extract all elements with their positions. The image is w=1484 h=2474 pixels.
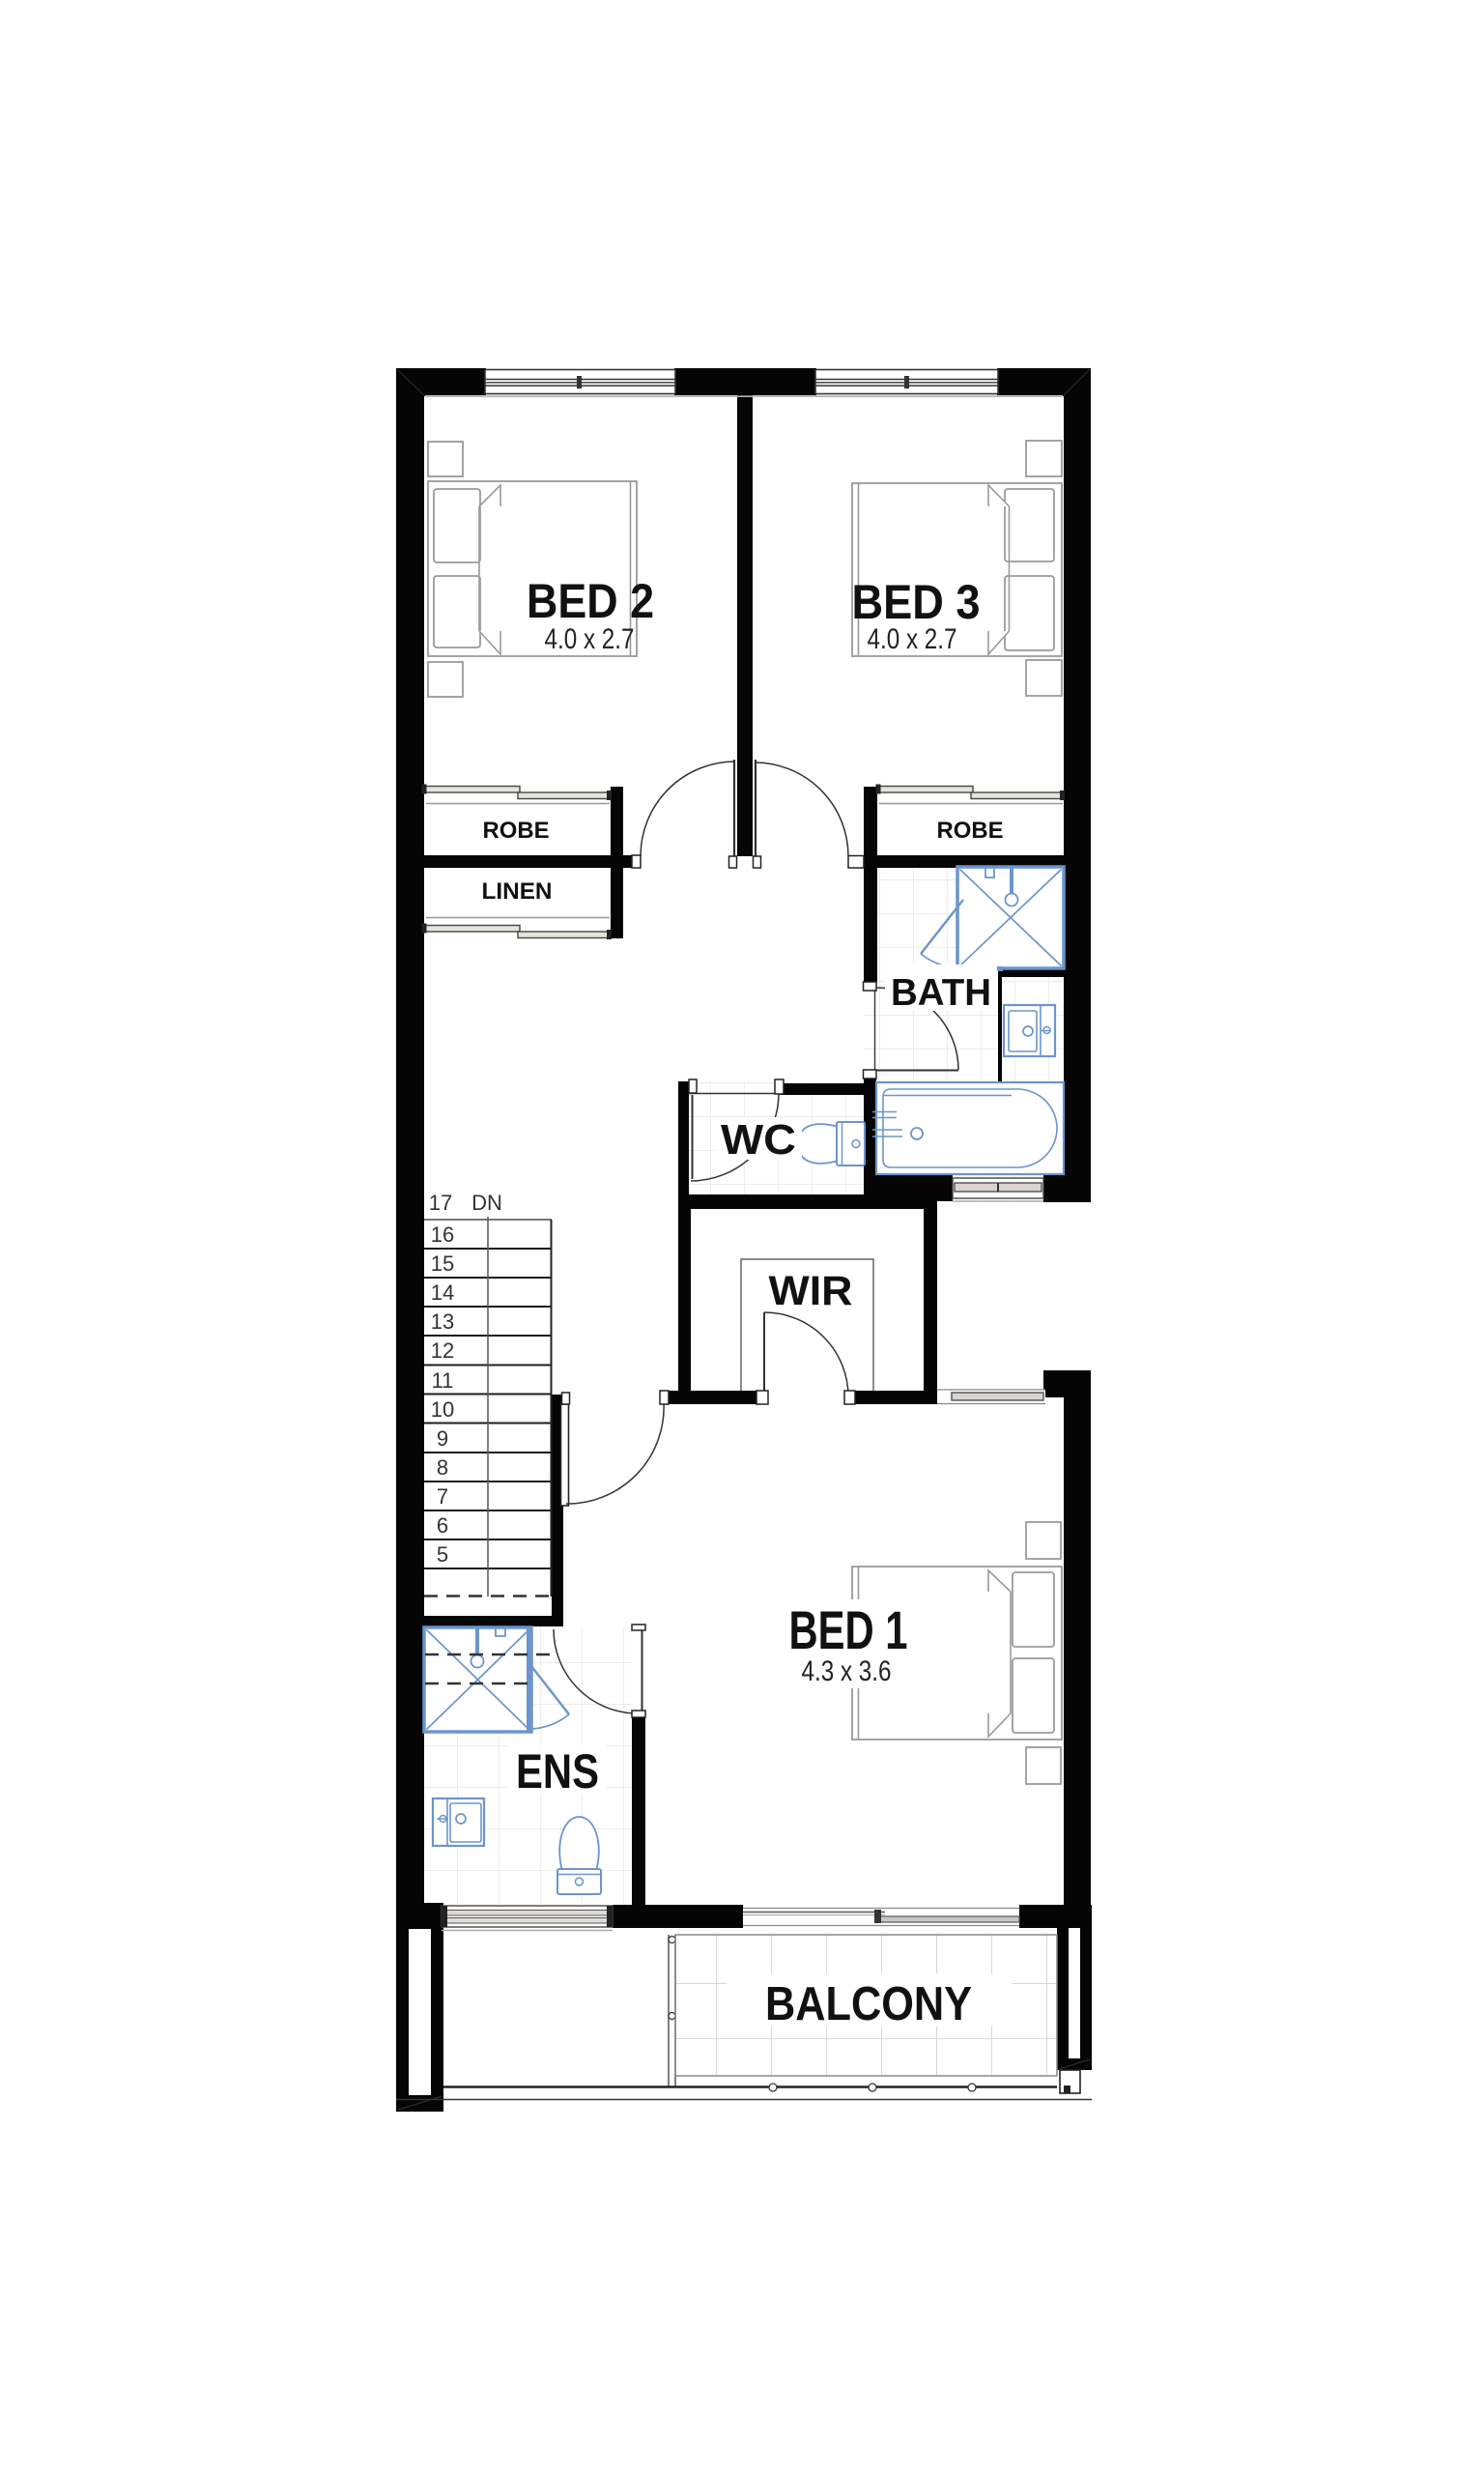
svg-text:BED 3: BED 3: [852, 575, 981, 629]
svg-text:5: 5: [437, 1542, 448, 1567]
svg-text:9: 9: [437, 1426, 448, 1451]
svg-text:WIR: WIR: [769, 1268, 853, 1314]
svg-text:17: 17: [429, 1191, 452, 1215]
svg-text:4.0 x 2.7: 4.0 x 2.7: [545, 623, 635, 655]
svg-text:14: 14: [431, 1280, 454, 1305]
svg-text:BED 2: BED 2: [527, 574, 654, 628]
svg-text:12: 12: [431, 1338, 454, 1363]
svg-text:BED 1: BED 1: [789, 1599, 908, 1660]
svg-text:8: 8: [437, 1455, 448, 1480]
svg-text:ENS: ENS: [516, 1744, 599, 1798]
svg-text:DN: DN: [471, 1191, 502, 1215]
svg-text:4.3 x 3.6: 4.3 x 3.6: [802, 1655, 892, 1687]
svg-text:ROBE: ROBE: [937, 818, 1004, 844]
svg-text:ROBE: ROBE: [483, 818, 550, 844]
svg-text:WC: WC: [721, 1116, 796, 1164]
svg-text:10: 10: [431, 1397, 454, 1422]
svg-text:BATH: BATH: [891, 972, 991, 1014]
svg-text:LINEN: LINEN: [482, 878, 553, 905]
svg-text:13: 13: [431, 1309, 454, 1334]
svg-text:4.0 x 2.7: 4.0 x 2.7: [868, 623, 957, 655]
svg-text:7: 7: [437, 1484, 448, 1509]
svg-text:11: 11: [432, 1368, 454, 1393]
svg-text:6: 6: [437, 1513, 448, 1538]
svg-text:16: 16: [431, 1223, 454, 1247]
svg-text:15: 15: [431, 1251, 454, 1276]
svg-text:BALCONY: BALCONY: [765, 1978, 972, 2030]
